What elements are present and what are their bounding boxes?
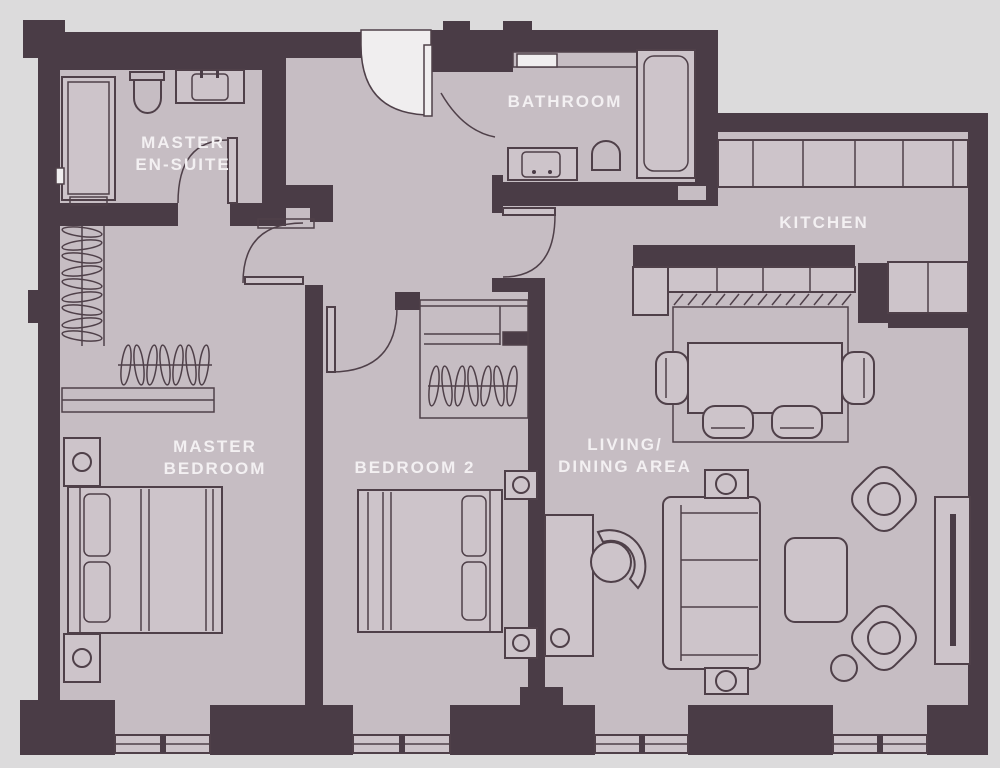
nightstand — [505, 628, 537, 658]
shower — [62, 77, 115, 200]
label-line: BEDROOM — [164, 458, 267, 480]
room-label-master-ensuite: MASTER EN-SUITE — [135, 132, 230, 176]
floorplan-drawing — [0, 0, 1000, 768]
master-door-leaf — [245, 277, 303, 284]
label-line: BATHROOM — [508, 91, 623, 113]
dining-table — [688, 343, 842, 413]
room-label-master-bedroom: MASTER BEDROOM — [164, 436, 267, 480]
nightstand — [64, 634, 100, 682]
label-line: BEDROOM 2 — [355, 457, 476, 479]
wall-niche — [678, 186, 706, 200]
dining-chair — [842, 352, 874, 404]
label-line: MASTER — [173, 436, 257, 458]
room-label-bedroom-2: BEDROOM 2 — [355, 457, 476, 479]
basin-counter — [176, 70, 244, 103]
niche — [517, 54, 557, 67]
label-line: MASTER — [141, 132, 225, 154]
bedroom2-door-leaf — [327, 307, 335, 372]
label-line: DINING AREA — [558, 456, 692, 478]
island-end-unit — [633, 267, 668, 315]
label-line: EN-SUITE — [135, 154, 230, 176]
nightstand — [505, 471, 537, 499]
dining-chair — [656, 352, 688, 404]
window — [353, 705, 450, 753]
dining-chair — [772, 406, 822, 438]
label-line: KITCHEN — [779, 212, 869, 234]
nightstand — [64, 438, 100, 486]
room-label-living-dining: LIVING/ DINING AREA — [558, 434, 692, 478]
sofa — [663, 497, 760, 669]
window — [115, 705, 210, 753]
room-label-bathroom: BATHROOM — [508, 91, 623, 113]
wall-slot — [56, 168, 64, 184]
counter-top-run — [718, 140, 968, 187]
window — [595, 705, 688, 753]
basin-counter — [508, 148, 577, 180]
bed — [68, 487, 222, 633]
label-line: LIVING/ — [587, 434, 662, 456]
tub-chair-seat — [591, 542, 631, 582]
tv — [950, 514, 956, 646]
window — [833, 705, 927, 753]
entrance-door-leaf — [424, 45, 432, 116]
coffee-table — [785, 538, 847, 622]
bed — [358, 490, 502, 632]
room-label-kitchen: KITCHEN — [779, 212, 869, 234]
bathroom-door-leaf — [503, 208, 555, 215]
dining-chair — [703, 406, 753, 438]
floorplan: MASTER EN-SUITE BATHROOM KITCHEN MASTER … — [0, 0, 1000, 768]
bathtub — [637, 50, 695, 178]
island-cabinets — [668, 267, 855, 292]
